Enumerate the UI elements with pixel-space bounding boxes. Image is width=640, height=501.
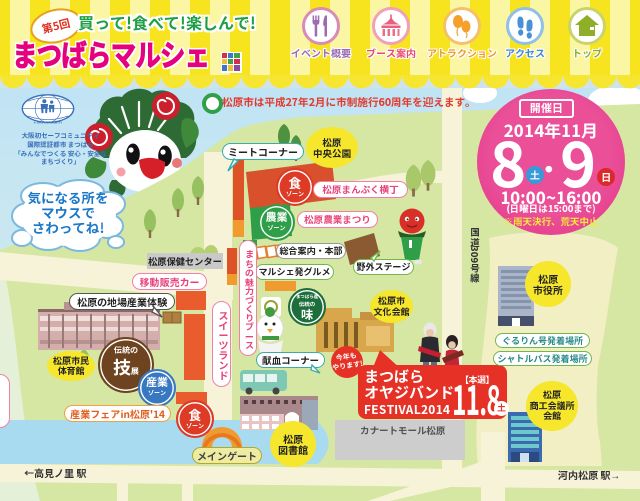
svg-text:A SAFE COMMUNITY: A SAFE COMMUNITY (33, 120, 63, 124)
